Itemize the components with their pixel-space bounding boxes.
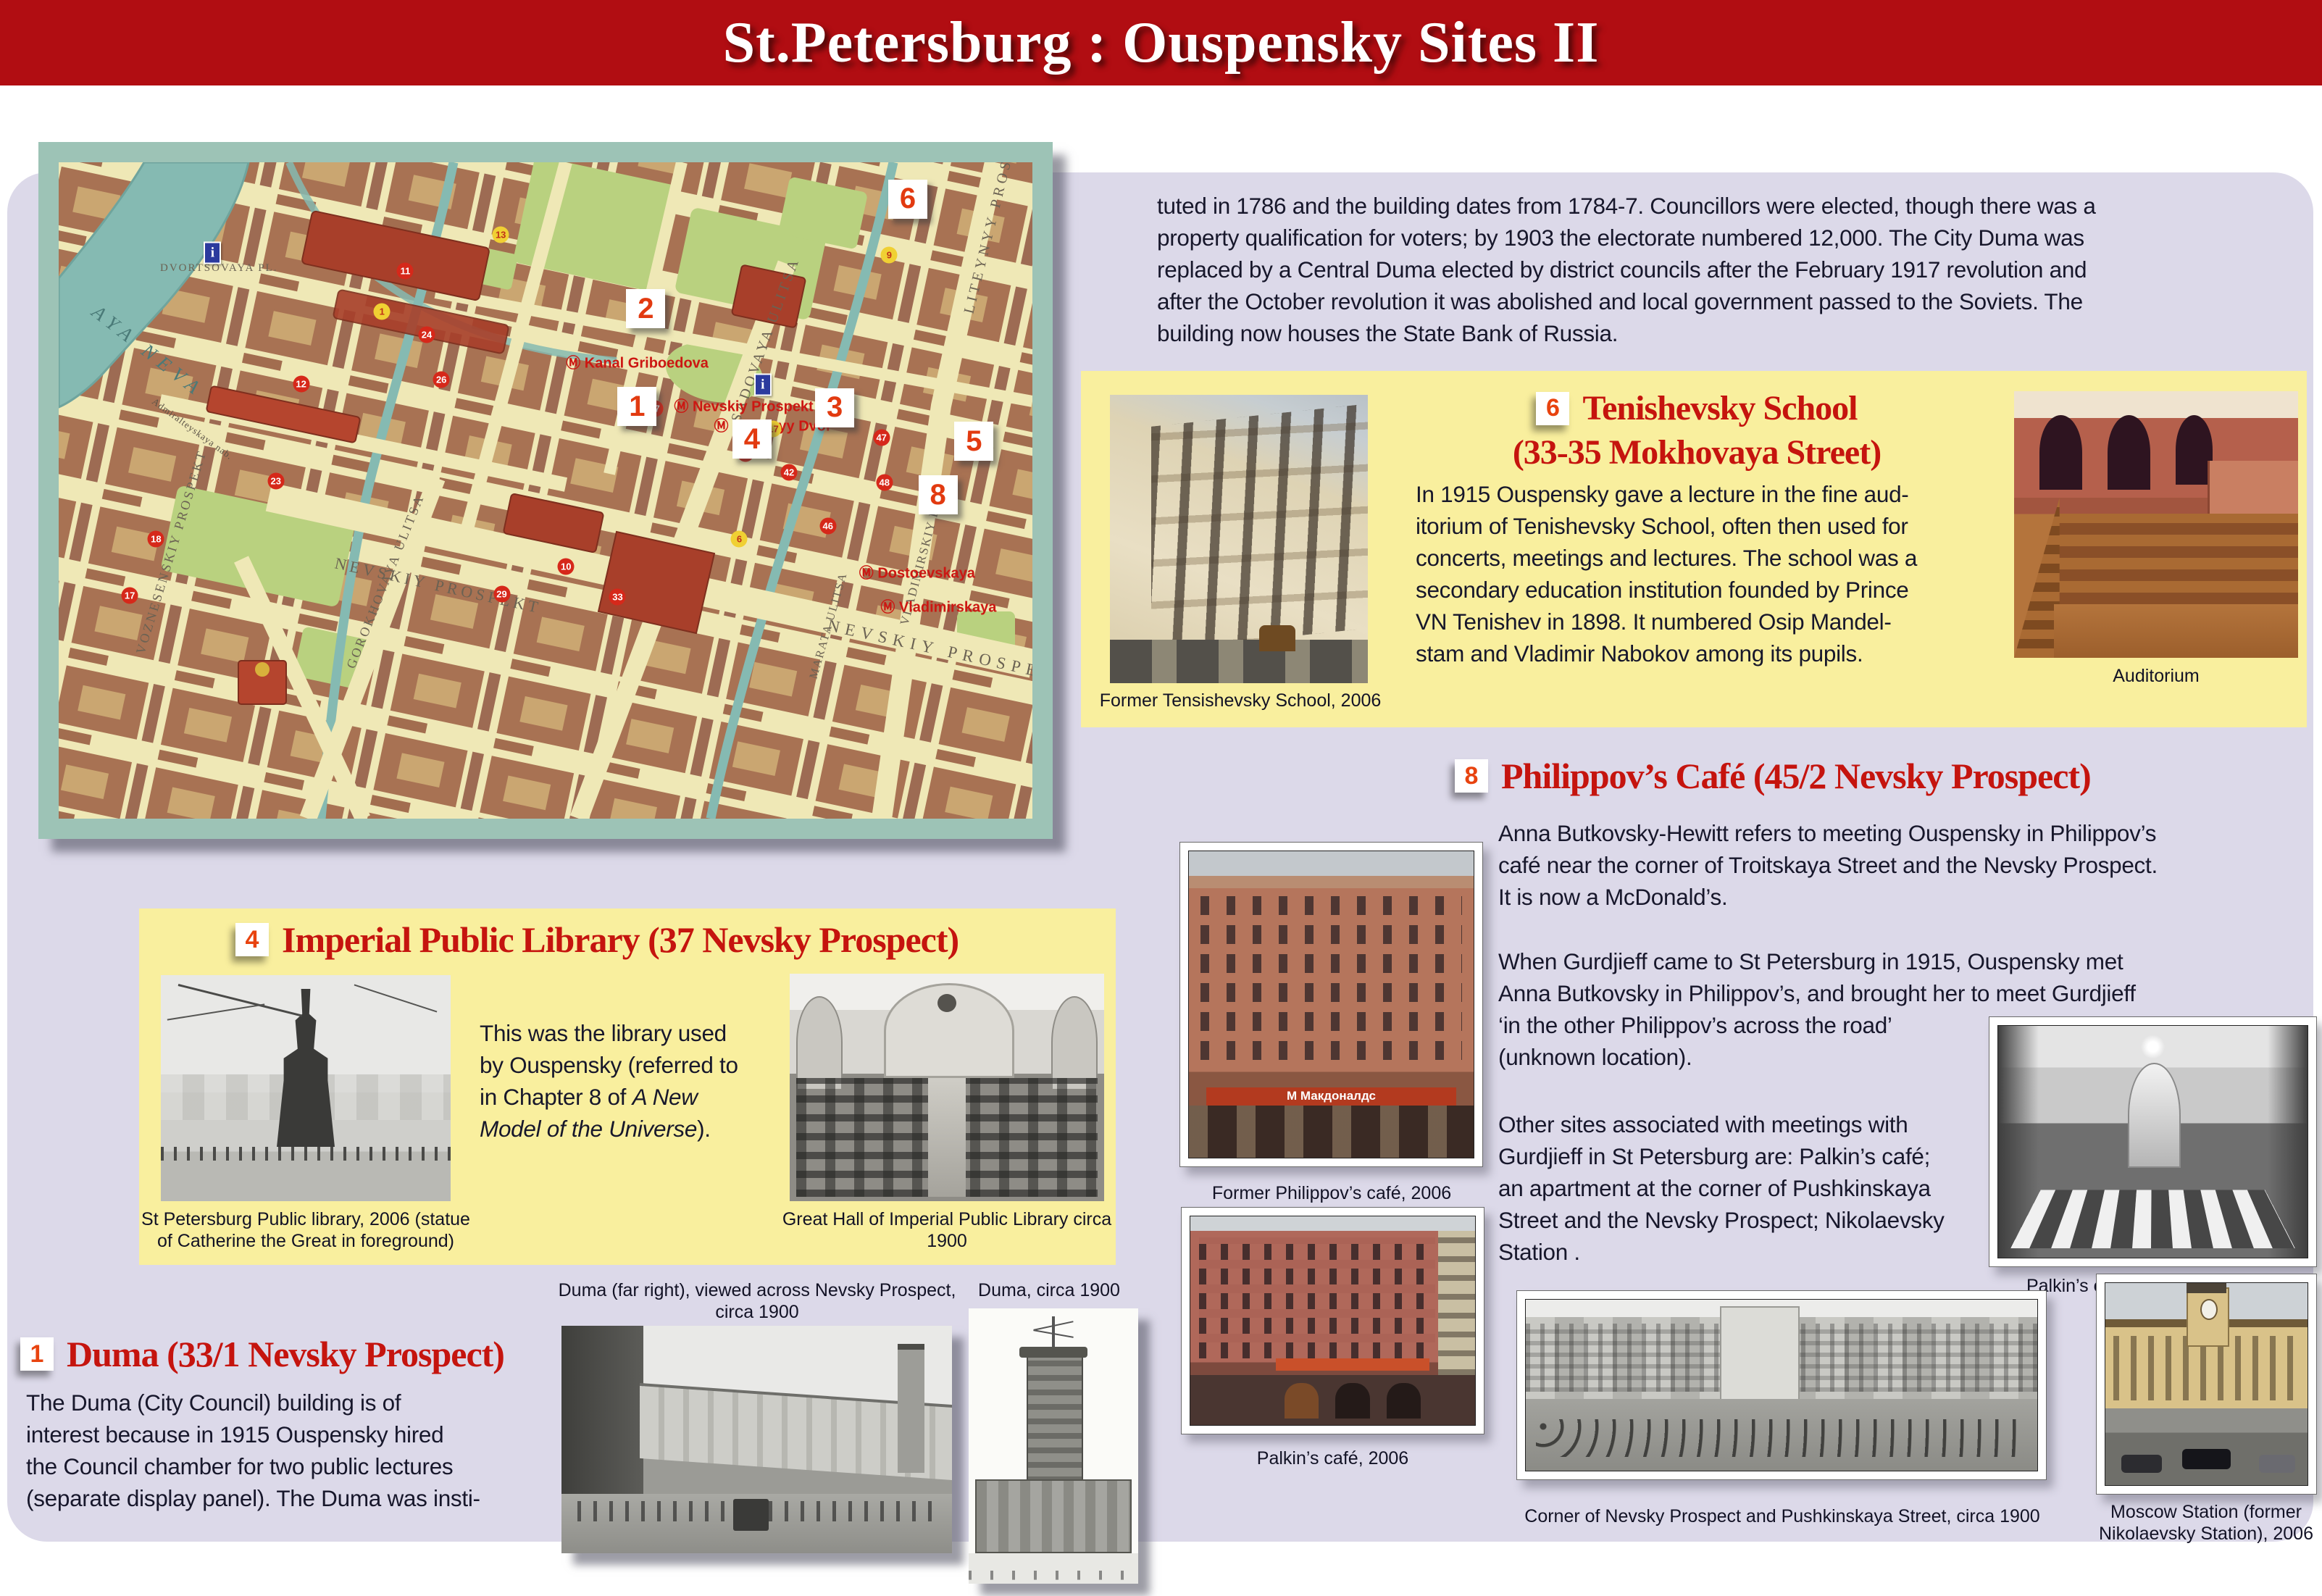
caption-philippov-photo: Former Philippov’s café, 2006 xyxy=(1150,1182,1513,1204)
library-body-text: This was the library used by Ouspensky (… xyxy=(480,1017,791,1145)
map-dot: 13 xyxy=(493,226,509,243)
map-dot: 26 xyxy=(433,371,450,388)
map-dot: 42 xyxy=(781,464,798,480)
map-marker-3: 3 xyxy=(815,388,854,427)
photo-auditorium xyxy=(2014,391,2298,658)
header-bar: St.Petersburg : Ouspensky Sites II xyxy=(0,0,2322,85)
caption-tenishevsky-photo: Former Tensishevsky School, 2006 xyxy=(1081,690,1400,711)
photo-corner-nevsky-pushkinskaya xyxy=(1516,1290,2047,1480)
caption-library-statue: St Petersburg Public library, 2006 (stat… xyxy=(139,1208,472,1252)
map-dot: 17 xyxy=(122,587,138,603)
map-dot: 23 xyxy=(267,473,284,490)
philippov-paragraph-3: Other sites associated with meetings wit… xyxy=(1498,1108,1991,1268)
library-body-pre: This was the library used by Ouspensky (… xyxy=(480,1020,738,1110)
map-marker-1: 1 xyxy=(617,387,656,426)
metro-label-nevskiy-prospekt: Ⓜ Nevskiy Prospekt xyxy=(674,395,813,416)
duma-body-text: The Duma (City Council) building is of i… xyxy=(26,1387,555,1514)
caption-corner: Corner of Nevsky Prospect and Pushkinska… xyxy=(1471,1505,2094,1527)
map-marker-6: 6 xyxy=(888,180,927,219)
photo-duma-tower xyxy=(969,1308,1138,1584)
photo-palkin-cafe-interior xyxy=(1989,1016,2317,1267)
badge-6: 6 xyxy=(1536,392,1569,425)
tenishevsky-title-line2: (33-35 Mokhovaya Street) xyxy=(1392,433,2001,472)
map-dot: 6 xyxy=(731,531,748,548)
duma-continuation-text: tuted in 1786 and the building dates fro… xyxy=(1157,190,2273,349)
library-body-post: ). xyxy=(697,1116,711,1142)
tenishevsky-body-text: In 1915 Ouspensky gave a lecture in the … xyxy=(1416,478,1995,669)
philippov-paragraph-1: Anna Butkovsky-Hewitt refers to meeting … xyxy=(1498,817,2277,913)
badge-4: 4 xyxy=(235,923,269,956)
badge-1: 1 xyxy=(20,1337,54,1371)
tenishevsky-title-line1: Tenishevsky School xyxy=(1582,388,1857,428)
photo-duma-across-nevsky xyxy=(561,1326,952,1553)
info-icon: i xyxy=(204,242,221,264)
poster: St.Petersburg : Ouspensky Sites II xyxy=(0,0,2322,1596)
map-dot: 48 xyxy=(876,475,893,491)
map-dot: 18 xyxy=(148,531,164,548)
library-title: Imperial Public Library (37 Nevsky Prosp… xyxy=(282,919,959,961)
map-dot: 46 xyxy=(819,517,836,534)
photo-library-statue xyxy=(161,975,451,1201)
library-section: 4 Imperial Public Library (37 Nevsky Pro… xyxy=(139,908,1116,1265)
map-marker-2: 2 xyxy=(626,289,665,328)
tenishevsky-section: Former Tensishevsky School, 2006 6 Tenis… xyxy=(1081,371,2307,727)
badge-8: 8 xyxy=(1455,759,1488,793)
photo-palkin-cafe xyxy=(1181,1207,1484,1434)
metro-label-dostoevskaya: Ⓜ Dostoevskaya xyxy=(859,561,975,582)
map-marker-4: 4 xyxy=(732,419,772,459)
caption-duma-tower: Duma, circa 1900 xyxy=(955,1279,1143,1301)
map-dot: 29 xyxy=(493,586,510,603)
page-title: St.Petersburg : Ouspensky Sites II xyxy=(0,0,2322,85)
photo-former-philippov-cafe: М Макдоналдс xyxy=(1179,842,1483,1167)
metro-label-vladimirskaya: Ⓜ Vladimirskaya xyxy=(880,595,996,616)
caption-palkin-cafe: Palkin’s café, 2006 xyxy=(1181,1447,1484,1469)
caption-duma-wide: Duma (far right), viewed across Nevsky P… xyxy=(551,1279,964,1323)
metro-label-kanal-griboedova: Ⓜ Kanal Griboedova xyxy=(566,351,709,372)
map-dot: 1 xyxy=(374,303,391,319)
map-dot: 33 xyxy=(609,588,626,605)
info-icon: i xyxy=(754,374,772,396)
caption-moscow-station: Moscow Station (former Nikolaevsky Stati… xyxy=(2079,1501,2322,1545)
map-dot: 12 xyxy=(293,376,309,393)
map-dot: 24 xyxy=(419,327,435,343)
map-dot: 10 xyxy=(558,559,575,575)
photo-moscow-station xyxy=(2096,1274,2317,1495)
photo-library-great-hall xyxy=(790,974,1104,1201)
map-dot: 47 xyxy=(873,429,890,446)
map-marker-5: 5 xyxy=(954,422,993,461)
map-marker-8: 8 xyxy=(919,475,958,514)
map-dot: 11 xyxy=(397,263,414,280)
photo-former-tenishevsky-school xyxy=(1110,395,1368,683)
mcdonalds-sign: М Макдоналдс xyxy=(1287,1089,1376,1103)
caption-auditorium: Auditorium xyxy=(2014,665,2298,687)
philippov-title: Philippov’s Café (45/2 Nevsky Prospect) xyxy=(1501,755,2091,797)
city-map: NEVSKIY PROSPEKT NEVSKIY PROSPEKT SADOVA… xyxy=(38,142,1053,839)
map-dot: 9 xyxy=(881,246,898,263)
caption-library-hall: Great Hall of Imperial Public Library ci… xyxy=(768,1208,1126,1252)
duma-title: Duma (33/1 Nevsky Prospect) xyxy=(67,1333,504,1375)
